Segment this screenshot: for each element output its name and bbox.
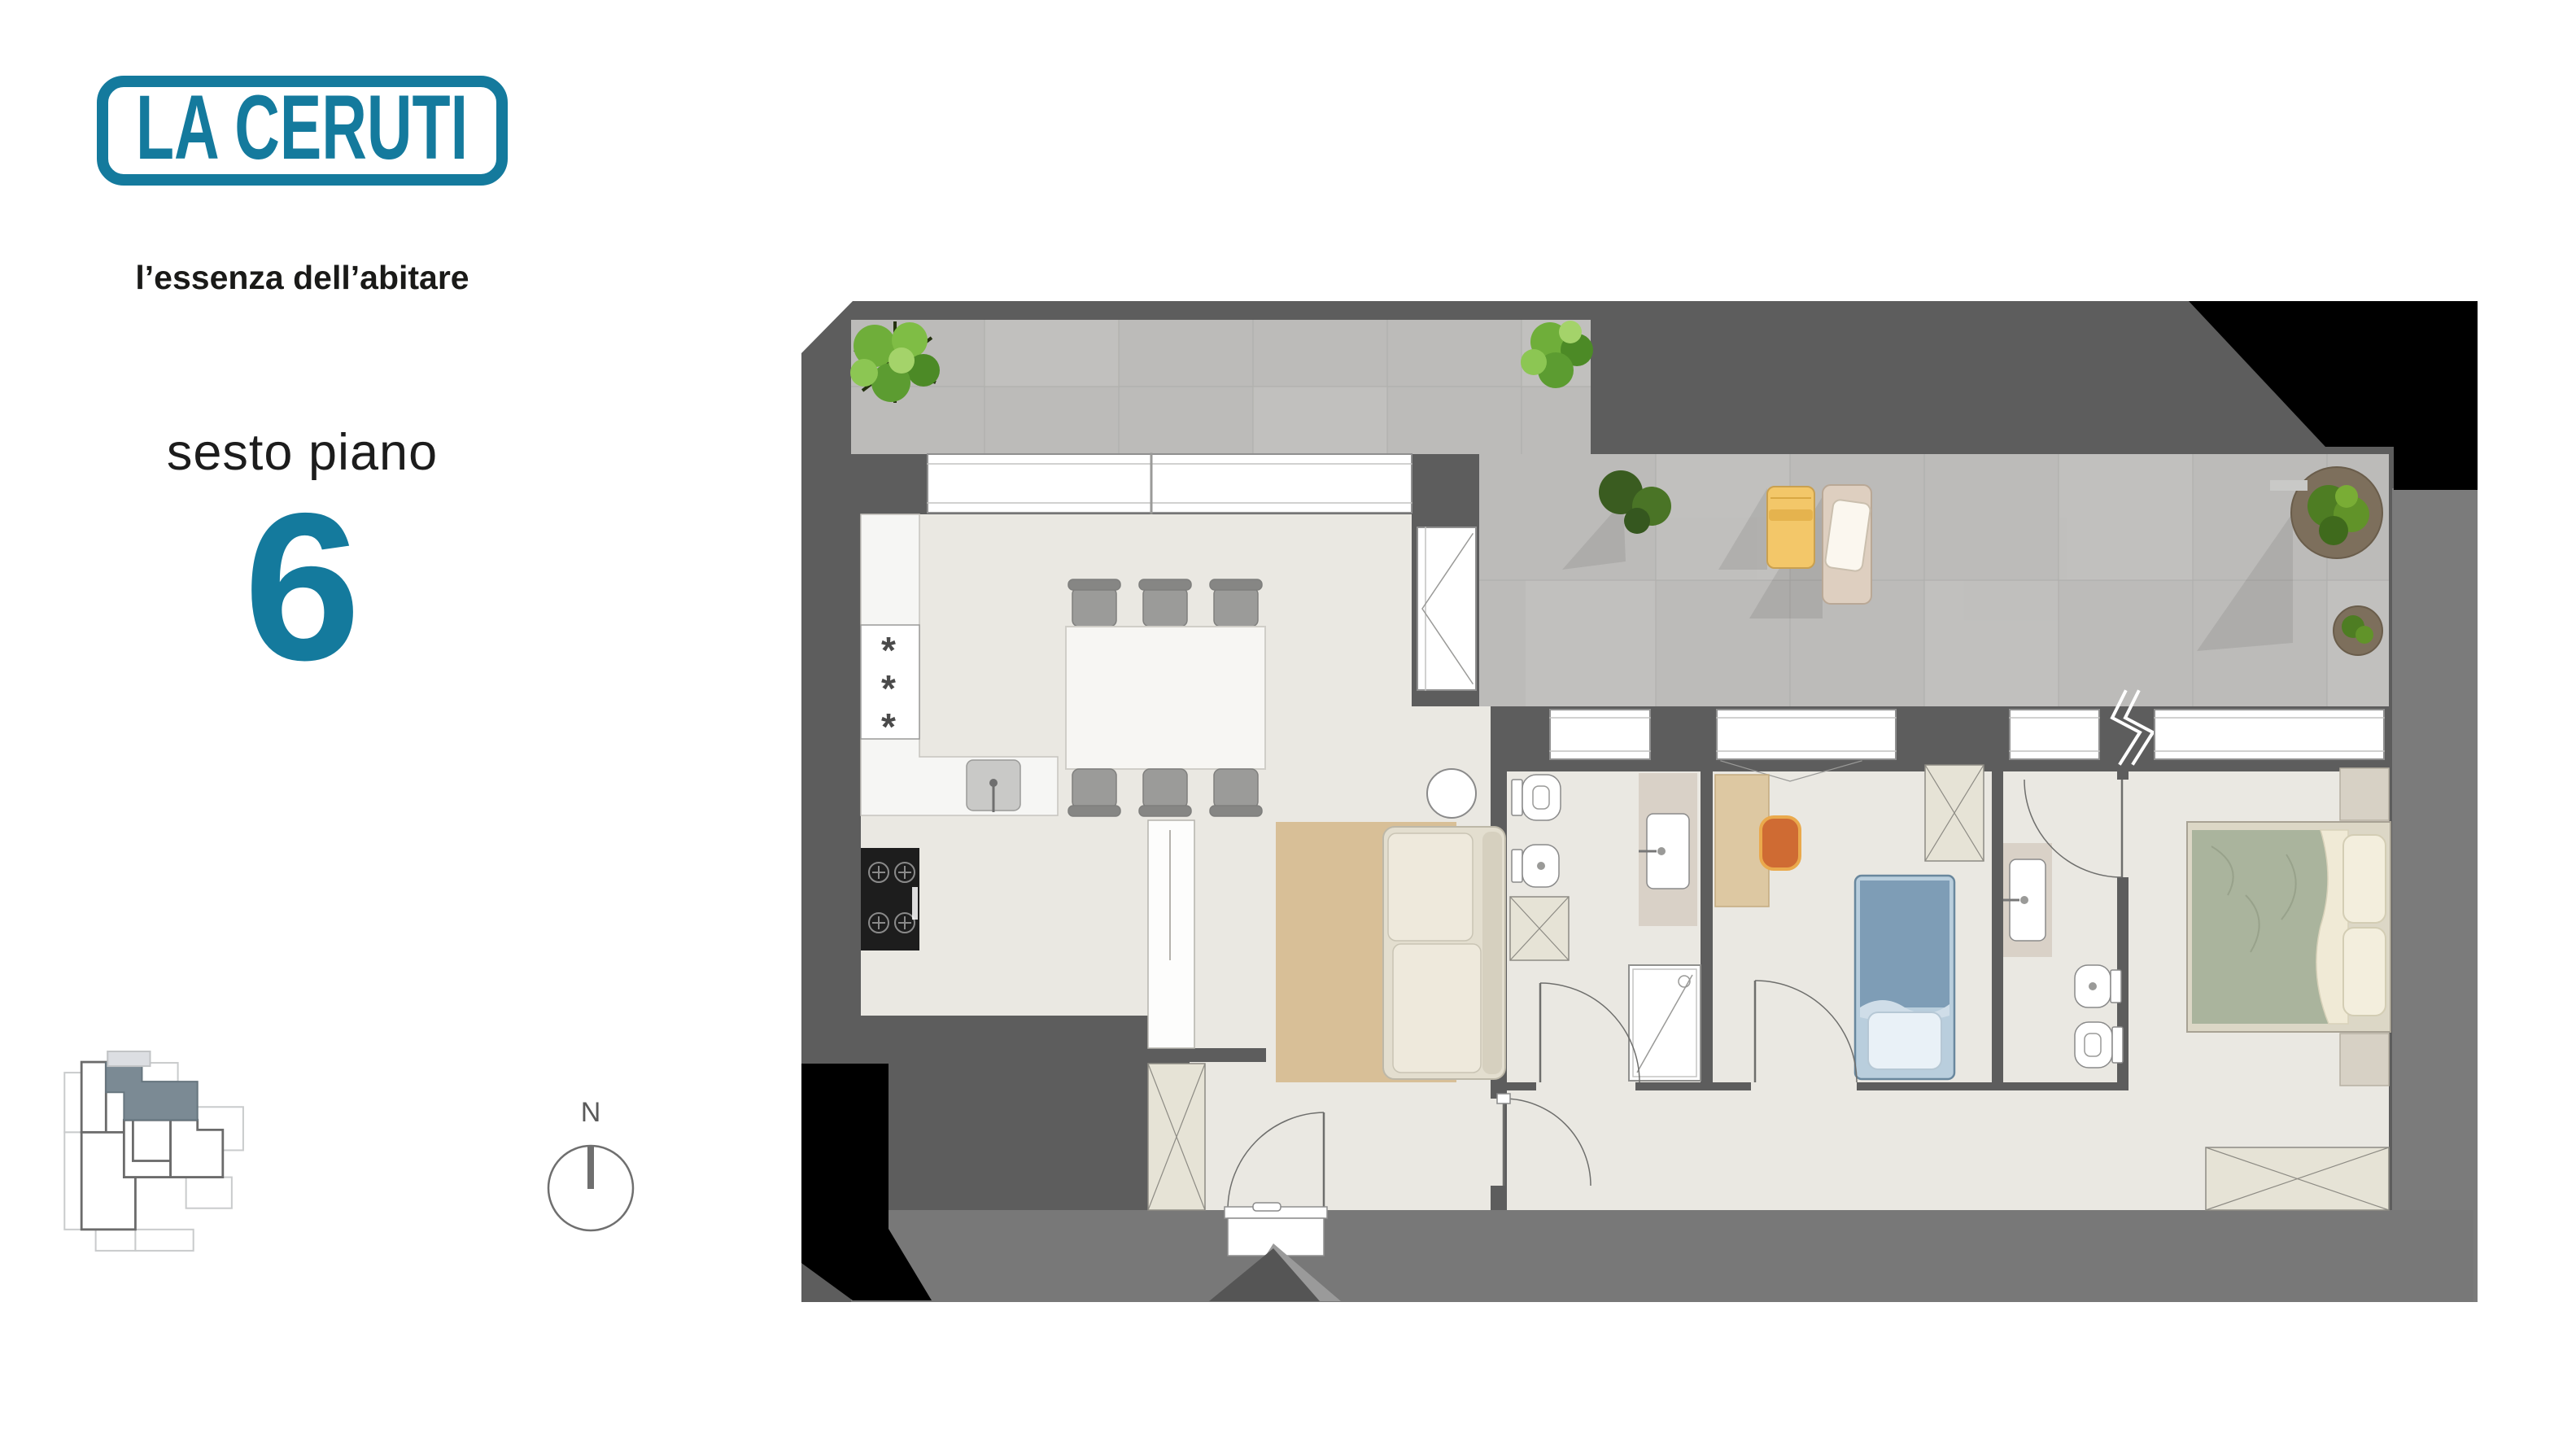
sun-lounger-beige bbox=[1823, 485, 1871, 604]
compass-needle bbox=[587, 1146, 594, 1189]
floor-plan: * * * bbox=[801, 301, 2478, 1302]
terrace-drain bbox=[2270, 480, 2307, 491]
bottom-facade-band bbox=[851, 1210, 2473, 1302]
side-table bbox=[1427, 769, 1476, 818]
svg-text:*: * bbox=[881, 629, 896, 671]
wall-stub bbox=[1148, 1048, 1266, 1062]
cooktop bbox=[861, 848, 919, 950]
vanity-2 bbox=[2003, 843, 2052, 957]
bidet bbox=[1512, 845, 1559, 887]
svg-text:*: * bbox=[881, 667, 896, 710]
opening-bedroom1-door bbox=[1751, 1082, 1857, 1092]
window-terrace-door bbox=[1417, 527, 1476, 690]
compass-north-label: N bbox=[581, 1097, 601, 1128]
keyplan-secondary-unit bbox=[107, 1051, 150, 1066]
brand-logo: LA CERUTI bbox=[96, 75, 509, 186]
wardrobe-single bbox=[1925, 765, 1984, 861]
floor-number: 6 bbox=[96, 482, 509, 692]
sun-lounger-yellow bbox=[1767, 487, 1814, 568]
dining-set bbox=[1066, 579, 1265, 816]
north-compass: N bbox=[537, 1082, 644, 1245]
single-bed bbox=[1855, 876, 1954, 1079]
shaft bbox=[1510, 897, 1569, 960]
fridge-freezer: * * * bbox=[861, 625, 919, 748]
sofa bbox=[1383, 827, 1505, 1079]
right-facade-band bbox=[2392, 488, 2478, 1302]
page: LA CERUTI l’essenza dell’abitare sesto p… bbox=[0, 0, 2576, 1429]
entry-wardrobe bbox=[1148, 1064, 1205, 1210]
double-bed bbox=[2187, 822, 2390, 1032]
tall-cabinet bbox=[1148, 820, 1194, 1048]
svg-text:*: * bbox=[881, 706, 896, 748]
window-bathroom-1 bbox=[1550, 710, 1650, 759]
window-kitchen bbox=[928, 454, 1412, 513]
dining-chairs-bottom bbox=[1068, 769, 1262, 816]
brand-tagline: l’essenza dell’abitare bbox=[96, 259, 509, 297]
window-bathroom-2 bbox=[2010, 710, 2099, 759]
toilet-2 bbox=[2075, 1022, 2123, 1068]
dining-chairs-top bbox=[1068, 579, 1262, 627]
opening-bathroom1-door bbox=[1536, 1082, 1635, 1092]
vanity-1 bbox=[1639, 773, 1697, 926]
window-bedroom-master bbox=[2155, 710, 2384, 759]
toilet bbox=[1512, 775, 1561, 820]
kitchen-sink bbox=[967, 760, 1020, 812]
shower bbox=[1629, 965, 1701, 1081]
nightstand-bottom bbox=[2340, 1034, 2389, 1086]
nightstand-top bbox=[2340, 768, 2389, 820]
terrace-planter-small bbox=[2334, 606, 2382, 655]
desk-chair bbox=[1761, 817, 1800, 869]
building-key-plan bbox=[63, 1050, 247, 1267]
logo-text: LA CERUTI bbox=[136, 76, 468, 178]
dining-table bbox=[1066, 627, 1265, 769]
bidet-2 bbox=[2075, 965, 2121, 1007]
opening-living-corridor bbox=[1491, 1099, 1504, 1186]
wardrobe-master bbox=[2206, 1147, 2389, 1210]
